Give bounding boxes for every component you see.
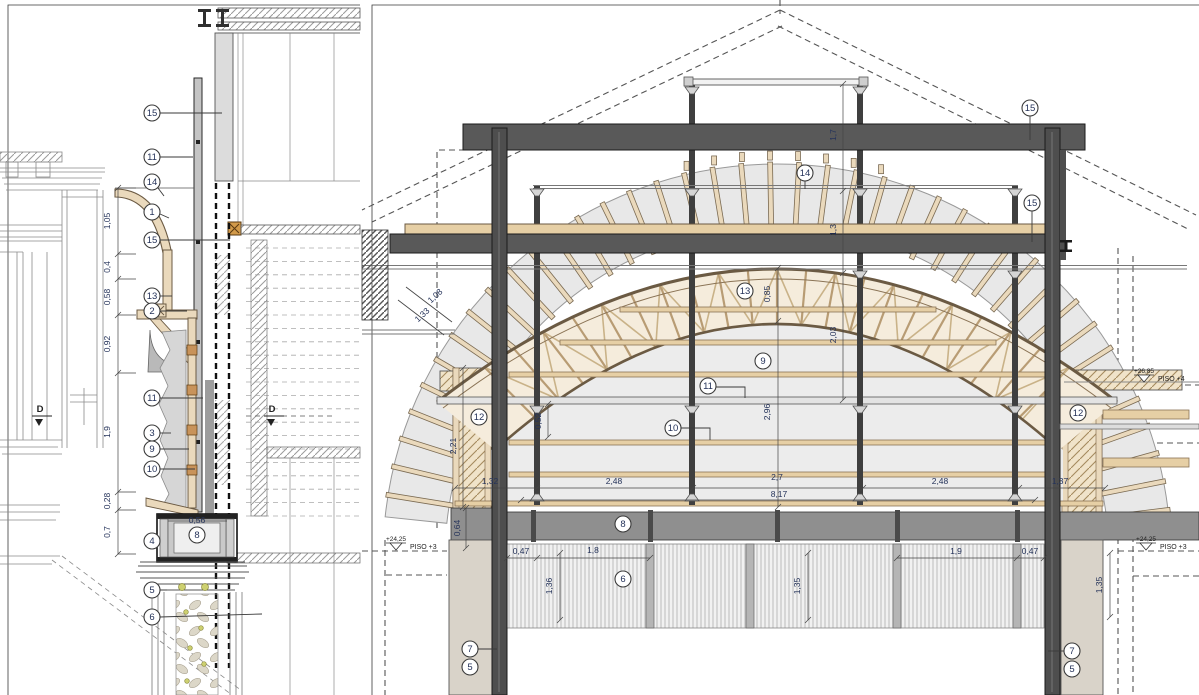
dimension-label: 0,28 xyxy=(102,492,112,509)
dimension-label: 1,32 xyxy=(482,476,499,486)
dimension-label: 1,35 xyxy=(1094,576,1104,593)
left-section-detail-panel xyxy=(0,5,360,695)
callout-number: 11 xyxy=(147,152,157,163)
dimension-label: 0,58 xyxy=(102,288,112,305)
callout-number: 15 xyxy=(147,108,158,119)
dimension-label: 0,85 xyxy=(762,285,772,302)
dimension-label: 1,7 xyxy=(828,129,838,141)
svg-text:+24,25: +24,25 xyxy=(1136,536,1156,543)
upper-wall-lines xyxy=(238,33,360,225)
callout-number: 8 xyxy=(194,530,199,541)
dimension-label: 1,08 xyxy=(425,286,444,305)
svg-text:D: D xyxy=(37,404,44,415)
callout-number: 8 xyxy=(620,519,625,530)
floor-structure xyxy=(205,183,360,695)
callout-number: 10 xyxy=(147,464,158,475)
dimension-label: 1,3 xyxy=(828,224,838,236)
callout-number: 7 xyxy=(1069,646,1074,657)
svg-text:PISO +4: PISO +4 xyxy=(1158,376,1185,383)
callout-number: 14 xyxy=(147,177,158,188)
steel-beam-lower xyxy=(390,234,1048,253)
right-cross-section-panel xyxy=(362,0,1199,695)
level-triangle-icon xyxy=(390,543,402,550)
callout-number: 3 xyxy=(149,428,154,439)
floor-edge-band xyxy=(507,512,1199,540)
callout-number: 5 xyxy=(467,662,472,673)
level-triangle-icon xyxy=(1140,543,1152,550)
dimension-label: 0,64 xyxy=(452,519,462,536)
drawing-svg: 1,050,40,580,921,90,280,70,5615111411513… xyxy=(0,0,1199,695)
callout-number: 6 xyxy=(149,612,154,623)
dimension-label: 1,33 xyxy=(412,305,431,324)
callout-number: 15 xyxy=(147,235,158,246)
dimension-label: 1,9 xyxy=(950,546,962,556)
steel-beam-top xyxy=(463,124,1085,150)
callout-number: 12 xyxy=(474,412,485,423)
callout-number: 2 xyxy=(149,306,154,317)
callout-number: 13 xyxy=(147,291,158,302)
callout-number: 9 xyxy=(149,444,154,455)
dimension-label: 8,17 xyxy=(771,489,788,499)
callout-leader xyxy=(158,188,164,196)
callout-number: 1 xyxy=(149,207,154,218)
callout-number: 12 xyxy=(1073,408,1084,419)
dimension-label: 2,21 xyxy=(448,437,458,454)
dimension-label: 1,9 xyxy=(102,426,112,438)
callout-number: 11 xyxy=(147,393,157,404)
section-cut-marker: D xyxy=(32,404,52,426)
architectural-drawing-canvas: 1,050,40,580,921,90,280,70,5615111411513… xyxy=(0,0,1199,695)
section-arrow-icon xyxy=(35,419,43,426)
callout-leader xyxy=(160,214,169,218)
svg-text:D: D xyxy=(269,404,276,415)
dimension-label: 2,48 xyxy=(932,476,949,486)
wall-pocket xyxy=(362,230,388,320)
callout-number: 5 xyxy=(1069,664,1074,675)
svg-text:+26,85: +26,85 xyxy=(1134,368,1154,375)
elevation-marker: +24,25PISO +3 xyxy=(386,536,437,551)
callout-number: 15 xyxy=(1027,198,1038,209)
callout-number: 5 xyxy=(149,585,154,596)
callout-number: 7 xyxy=(467,644,472,655)
dimension-label: 0,7 xyxy=(102,526,112,538)
lantern-frame xyxy=(684,77,868,86)
dimension-label: 2,96 xyxy=(762,403,772,420)
svg-text:PISO +3: PISO +3 xyxy=(410,544,437,551)
dimension-label: 1,36 xyxy=(544,577,554,594)
dimension-label: 1,35 xyxy=(792,577,802,594)
callout-number: 6 xyxy=(620,574,625,585)
dimension-label: 1,37 xyxy=(1052,476,1069,486)
callout-number: 9 xyxy=(760,356,765,367)
dimension-label: 2,03 xyxy=(828,326,838,343)
corrugated-infill xyxy=(507,544,1044,628)
dimension-label: 1,05 xyxy=(102,212,112,229)
dimension-label: 2,7 xyxy=(771,472,783,482)
callout-number: 15 xyxy=(1025,103,1036,114)
dimension-label: 2,48 xyxy=(606,476,623,486)
dimension-label: 0,47 xyxy=(1022,546,1039,556)
dimension-label: 0,47 xyxy=(513,546,530,556)
plaster-layer xyxy=(159,330,186,508)
dimension-label: 0,92 xyxy=(102,335,112,352)
leaf-ornament-band xyxy=(176,594,218,695)
svg-text:PISO +3: PISO +3 xyxy=(1160,544,1187,551)
pilaster xyxy=(152,584,242,695)
upper-column xyxy=(215,33,233,181)
callout-number: 11 xyxy=(703,381,713,392)
dimension-label: 1,8 xyxy=(587,545,599,555)
top-floor-slab xyxy=(198,8,360,33)
callout-number: 4 xyxy=(149,536,154,547)
dimension-label: 0,52 xyxy=(533,412,543,429)
svg-text:+24,25: +24,25 xyxy=(386,536,406,543)
callout-number: 13 xyxy=(740,286,751,297)
callout-number: 14 xyxy=(800,168,811,179)
dimension-label: 0,56 xyxy=(189,515,206,525)
callout-number: 10 xyxy=(668,423,679,434)
dimension-label: 0,4 xyxy=(102,261,112,273)
